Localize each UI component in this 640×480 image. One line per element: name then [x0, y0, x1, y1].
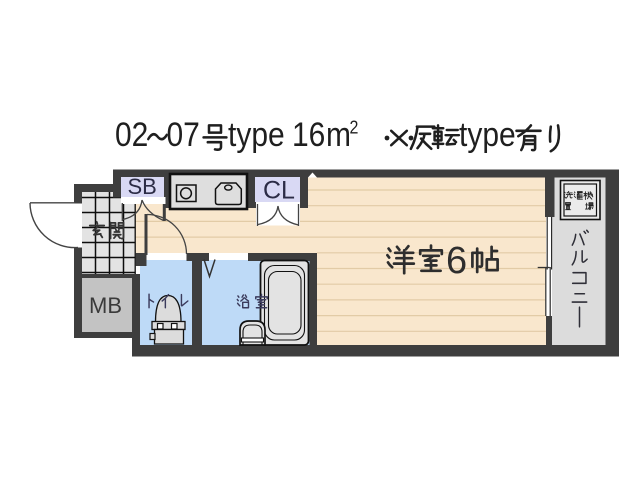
svg-text:6: 6 [446, 240, 467, 282]
svg-text:type: type [459, 115, 516, 153]
svg-text:CL: CL [263, 177, 295, 205]
svg-text:type: type [228, 115, 285, 153]
svg-text:MB: MB [89, 293, 122, 318]
svg-text:SB: SB [128, 174, 157, 199]
svg-text:16: 16 [292, 115, 325, 153]
svg-text:2: 2 [350, 117, 359, 137]
svg-text:m: m [326, 115, 351, 153]
svg-text:07: 07 [167, 115, 200, 153]
svg-text:02: 02 [115, 115, 148, 153]
